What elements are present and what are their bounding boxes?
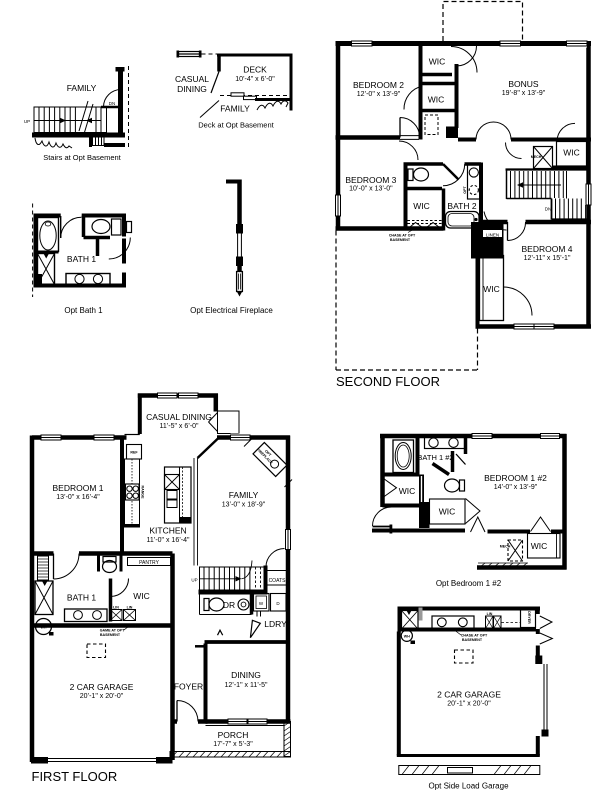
svg-text:RANGE: RANGE bbox=[141, 486, 145, 500]
svg-text:FAMILY: FAMILY bbox=[220, 104, 250, 114]
svg-text:DECK: DECK bbox=[243, 65, 267, 75]
svg-text:BEDROOM 1: BEDROOM 1 bbox=[52, 483, 103, 493]
svg-text:SECOND FLOOR: SECOND FLOOR bbox=[336, 374, 440, 389]
svg-text:CASUAL: CASUAL bbox=[175, 74, 209, 84]
svg-text:PANTRY: PANTRY bbox=[139, 560, 159, 566]
svg-text:10’-4" x 6’-0": 10’-4" x 6’-0" bbox=[235, 76, 275, 83]
svg-text:DINING: DINING bbox=[231, 670, 261, 680]
svg-text:BATH 1 #2: BATH 1 #2 bbox=[417, 453, 453, 462]
svg-text:BATH 1: BATH 1 bbox=[67, 593, 96, 603]
svg-text:20’-1" x 20’-0": 20’-1" x 20’-0" bbox=[80, 693, 124, 700]
svg-text:LIN: LIN bbox=[113, 606, 119, 610]
svg-text:DINING: DINING bbox=[177, 84, 207, 94]
svg-text:MECH: MECH bbox=[531, 155, 542, 159]
svg-text:10’-0" x 13’-0": 10’-0" x 13’-0" bbox=[349, 186, 393, 193]
svg-text:WIC: WIC bbox=[413, 201, 430, 211]
svg-text:FAMILY: FAMILY bbox=[229, 490, 259, 500]
svg-text:KITCHEN: KITCHEN bbox=[149, 526, 186, 536]
svg-text:WIC: WIC bbox=[428, 95, 445, 105]
svg-text:11’-5" x 6’-0": 11’-5" x 6’-0" bbox=[159, 423, 199, 430]
svg-text:WIC: WIC bbox=[483, 284, 500, 294]
svg-text:CHASE AT OPT: CHASE AT OPT bbox=[461, 634, 488, 638]
svg-text:BONUS: BONUS bbox=[508, 79, 539, 89]
svg-text:DRYER: DRYER bbox=[527, 611, 531, 624]
svg-text:PORCH: PORCH bbox=[218, 730, 249, 740]
svg-text:13’-0" x 18’-9": 13’-0" x 18’-9" bbox=[222, 502, 266, 509]
svg-text:GAME AT OPT: GAME AT OPT bbox=[100, 629, 125, 633]
svg-text:13’-0" x 16’-4": 13’-0" x 16’-4" bbox=[56, 494, 100, 501]
svg-text:FAMILY: FAMILY bbox=[67, 83, 97, 93]
svg-text:WIC: WIC bbox=[429, 57, 446, 67]
svg-text:CASUAL DINING: CASUAL DINING bbox=[146, 412, 212, 422]
svg-text:LIN: LIN bbox=[487, 612, 493, 616]
svg-text:REF: REF bbox=[130, 451, 138, 455]
svg-text:BASEMENT: BASEMENT bbox=[462, 638, 483, 642]
svg-text:LINEN: LINEN bbox=[486, 233, 499, 238]
svg-text:2 CAR GARAGE: 2 CAR GARAGE bbox=[70, 682, 134, 692]
svg-text:OPT: OPT bbox=[463, 186, 467, 194]
svg-text:11’-0" x 16’-4": 11’-0" x 16’-4" bbox=[147, 537, 190, 544]
svg-text:COATS: COATS bbox=[269, 578, 287, 584]
svg-text:FOYER: FOYER bbox=[174, 682, 203, 692]
svg-text:2 CAR GARAGE: 2 CAR GARAGE bbox=[437, 690, 501, 700]
svg-text:DN: DN bbox=[109, 101, 116, 106]
svg-text:WIC: WIC bbox=[133, 591, 150, 601]
svg-text:FIRST FLOOR: FIRST FLOOR bbox=[32, 769, 118, 784]
svg-text:WIC: WIC bbox=[563, 148, 580, 158]
svg-text:UP: UP bbox=[24, 119, 30, 124]
svg-text:WH: WH bbox=[404, 635, 410, 639]
svg-text:12’-0" x 13’-9": 12’-0" x 13’-9" bbox=[357, 91, 401, 98]
svg-text:BEDROOM 2: BEDROOM 2 bbox=[353, 80, 404, 90]
svg-text:BATH 1: BATH 1 bbox=[67, 254, 96, 264]
svg-text:Opt Bedroom 1 #2: Opt Bedroom 1 #2 bbox=[436, 579, 502, 588]
svg-text:19’-8" x 13’-9": 19’-8" x 13’-9" bbox=[502, 90, 546, 97]
svg-text:BASEMENT: BASEMENT bbox=[100, 633, 121, 637]
svg-text:BEDROOM 3: BEDROOM 3 bbox=[345, 175, 396, 185]
svg-text:BEDROOM 1 #2: BEDROOM 1 #2 bbox=[484, 473, 547, 483]
svg-text:12’-1" x 11’-5": 12’-1" x 11’-5" bbox=[225, 682, 268, 689]
svg-text:BEDROOM 4: BEDROOM 4 bbox=[521, 244, 572, 254]
svg-text:MECH: MECH bbox=[500, 545, 511, 549]
svg-text:Deck at Opt Basement: Deck at Opt Basement bbox=[198, 121, 274, 130]
svg-text:12’-11" x 15’-1": 12’-11" x 15’-1" bbox=[524, 255, 571, 262]
svg-text:BASEMENT: BASEMENT bbox=[390, 238, 411, 242]
svg-text:DR: DR bbox=[223, 600, 235, 610]
svg-text:CHASE AT OPT: CHASE AT OPT bbox=[389, 234, 416, 238]
svg-text:Opt Bath 1: Opt Bath 1 bbox=[64, 306, 103, 315]
svg-text:UP: UP bbox=[191, 578, 197, 583]
svg-text:WIC: WIC bbox=[399, 486, 416, 496]
svg-text:Opt Side Load Garage: Opt Side Load Garage bbox=[428, 782, 509, 791]
svg-text:LDRY: LDRY bbox=[264, 619, 287, 629]
svg-text:Stairs at Opt Basement: Stairs at Opt Basement bbox=[43, 153, 121, 162]
svg-text:DN: DN bbox=[545, 207, 552, 212]
svg-text:BATH 2: BATH 2 bbox=[447, 201, 476, 211]
svg-text:WIC: WIC bbox=[439, 507, 456, 517]
svg-text:Opt Electrical Fireplace: Opt Electrical Fireplace bbox=[190, 306, 273, 315]
svg-text:14’-0" x 13’-9": 14’-0" x 13’-9" bbox=[494, 484, 538, 491]
svg-text:LIN: LIN bbox=[127, 606, 133, 610]
svg-text:WIC: WIC bbox=[531, 541, 548, 551]
svg-text:20’-1" x 20’-0": 20’-1" x 20’-0" bbox=[447, 701, 491, 708]
svg-text:17’-7" x 5’-3": 17’-7" x 5’-3" bbox=[213, 741, 253, 748]
